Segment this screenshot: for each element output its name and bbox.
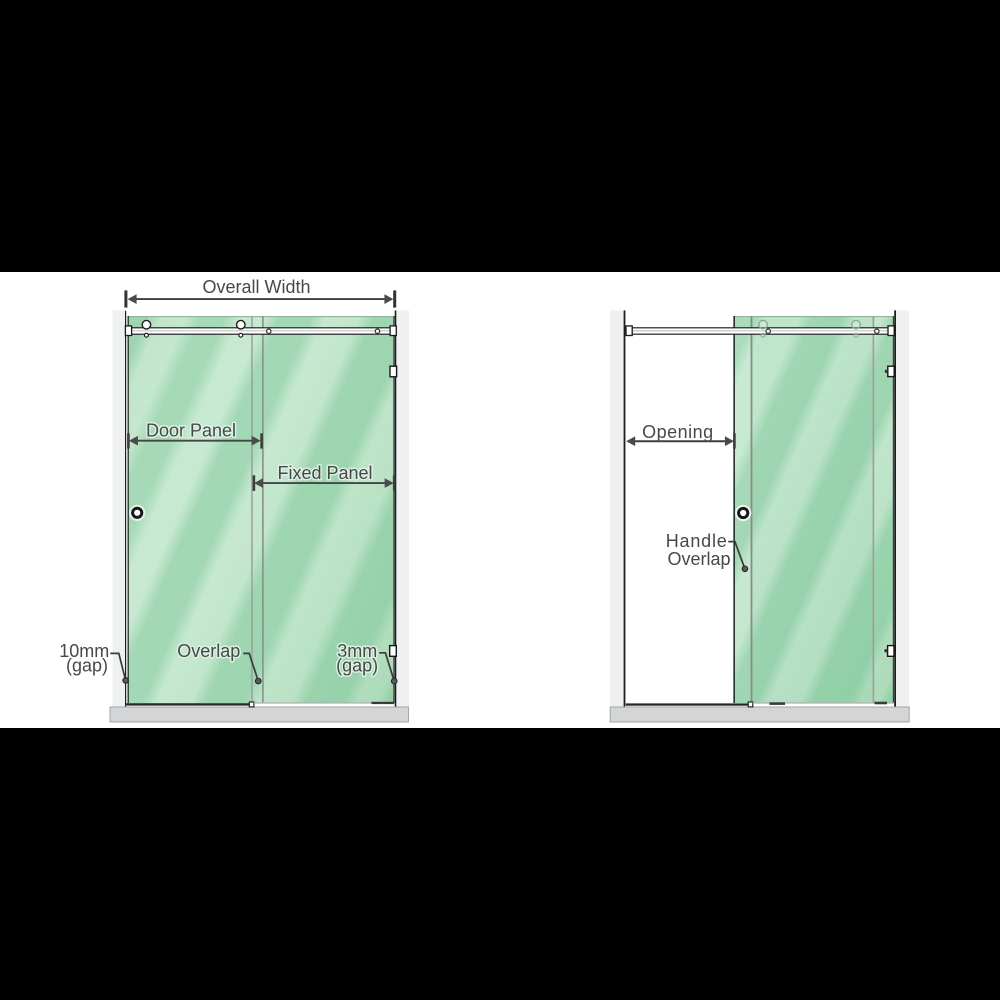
svg-text:(gap): (gap): [336, 656, 378, 676]
svg-text:Opening: Opening: [642, 422, 714, 442]
svg-text:Overlap: Overlap: [667, 549, 730, 569]
svg-text:Overlap: Overlap: [177, 641, 240, 661]
svg-text:Handle: Handle: [666, 531, 728, 551]
svg-text:Door Panel: Door Panel: [146, 421, 236, 441]
svg-text:(gap): (gap): [66, 656, 108, 676]
svg-text:Overall Width: Overall Width: [202, 277, 310, 297]
svg-text:Fixed Panel: Fixed Panel: [277, 463, 372, 483]
